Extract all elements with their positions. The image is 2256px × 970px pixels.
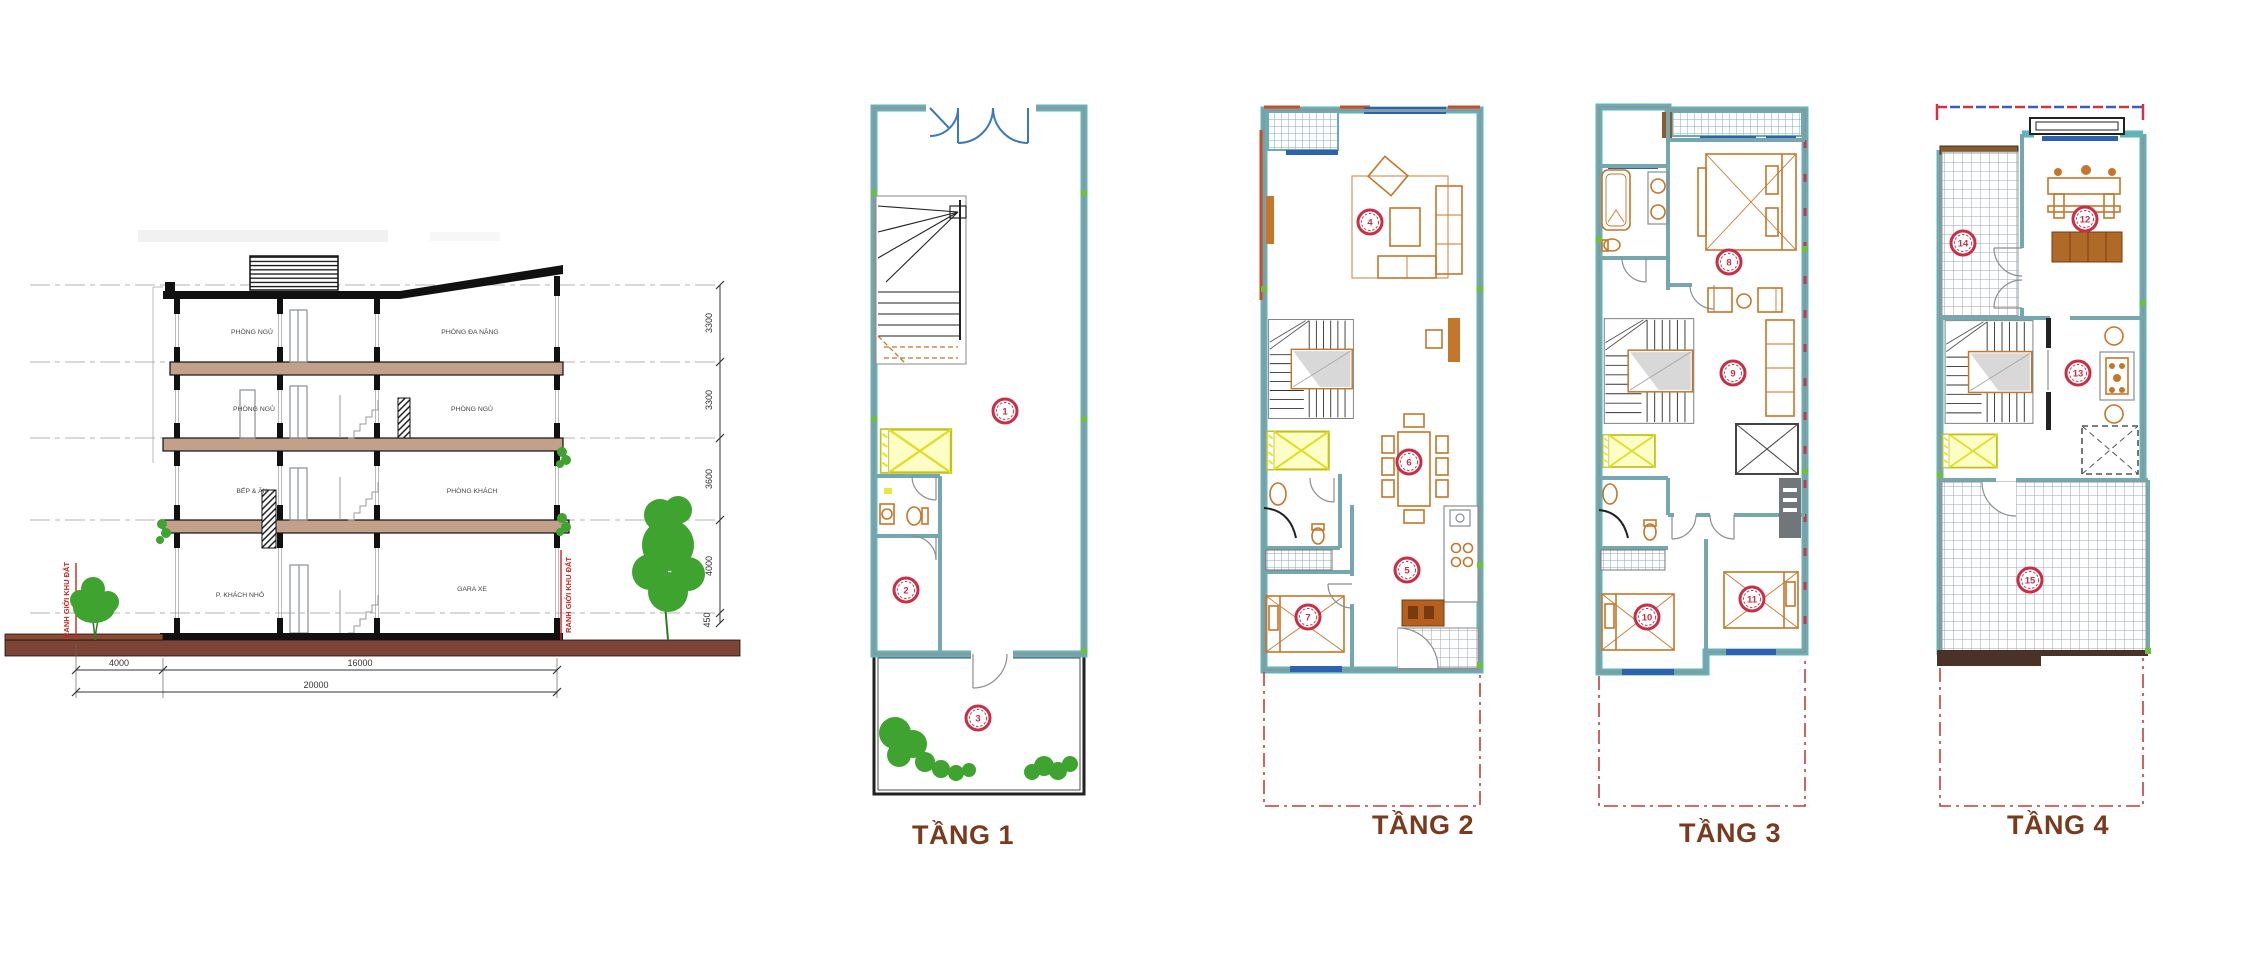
svg-text:11: 11 — [1747, 595, 1758, 606]
dim-h: 20000 — [303, 680, 328, 690]
shelf — [1779, 478, 1801, 538]
dim-v: 4000 — [704, 556, 714, 576]
room-label: PHÒNG KHÁCH — [447, 486, 498, 495]
plan-title-floor4: TẦNG 4 — [2007, 810, 2109, 841]
partition-stubs — [2046, 318, 2051, 430]
elevator — [881, 429, 951, 472]
room-marker: 8 — [1717, 250, 1741, 274]
bay-window — [2030, 118, 2124, 141]
tree-right — [632, 496, 705, 640]
dim-v: 3300 — [704, 390, 714, 410]
room-marker: 12 — [2073, 207, 2097, 231]
tiled-landing — [1398, 628, 1478, 668]
elevator — [1603, 435, 1655, 467]
hall-doors — [1672, 515, 1734, 539]
master-bed — [1690, 154, 1796, 309]
staircase — [1604, 319, 1694, 424]
ground — [5, 640, 740, 656]
roof-slab — [163, 265, 563, 299]
staircase — [1269, 319, 1354, 418]
drawing-sheet: PHÒNG NGỦ PHÒNG ĐA NĂNG PHÒNG NGỦ PHÒNG … — [0, 0, 2256, 970]
room-marker: 15 — [2018, 568, 2042, 592]
closet — [1266, 550, 1332, 570]
window-sill — [1290, 666, 1342, 672]
plan-title-floor1: TẦNG 1 — [912, 820, 1014, 851]
svg-text:6: 6 — [1406, 458, 1411, 469]
svg-text:5: 5 — [1404, 566, 1410, 577]
staircase — [876, 196, 966, 364]
room-marker: 2 — [894, 578, 918, 602]
plan-title-floor3: TẦNG 3 — [1679, 818, 1781, 849]
room-label: BẾP & ĂN — [236, 485, 267, 495]
bathroom — [1599, 484, 1656, 540]
svg-text:4: 4 — [1367, 218, 1373, 229]
section-stairs — [340, 395, 378, 633]
room-label: PHÒNG NGỦ — [451, 404, 493, 413]
bathroom — [880, 476, 936, 525]
vertical-dimensions: 3300 3300 3600 4000 450 — [702, 281, 724, 628]
interior-walls — [1264, 474, 1352, 670]
floor-slabs — [163, 362, 569, 533]
sitting-area — [1708, 288, 1794, 416]
dim-h: 4000 — [109, 658, 129, 668]
parapet-wall — [2040, 650, 2148, 656]
dim-v: 450 — [702, 612, 712, 627]
elevator — [1943, 434, 1997, 467]
lot-boundary — [1599, 656, 1805, 806]
store-room-door — [912, 536, 936, 560]
wardrobe — [2082, 426, 2138, 474]
boundary-label: RANH GIỚI KHU ĐẤT — [61, 562, 71, 638]
svg-text:8: 8 — [1726, 258, 1731, 269]
room-marker: 5 — [1395, 558, 1419, 582]
svg-text:15: 15 — [2025, 576, 2036, 587]
building-section: PHÒNG NGỦ PHÒNG ĐA NĂNG PHÒNG NGỦ PHÒNG … — [0, 0, 760, 970]
plan-title-floor2: TẦNG 2 — [1372, 810, 1474, 841]
svg-text:7: 7 — [1305, 613, 1310, 624]
balcony — [1268, 112, 1338, 150]
staircase — [1945, 321, 2033, 424]
room-label: PHÒNG ĐA NĂNG — [441, 327, 498, 336]
parapet-wall — [1937, 650, 2041, 666]
ground-slab — [160, 633, 563, 640]
svg-text:2: 2 — [903, 586, 908, 597]
room-marker: 3 — [966, 706, 990, 730]
wardrobe — [1736, 424, 1798, 474]
room-marker: 10 — [1635, 605, 1659, 629]
svg-text:1: 1 — [1002, 407, 1008, 418]
room-marker: 6 — [1397, 450, 1421, 474]
window-sill — [1622, 669, 1674, 675]
lot-boundary — [1940, 658, 2143, 806]
roof-terrace — [1942, 482, 2146, 652]
master-bathroom — [1602, 170, 1668, 282]
exterior-wall — [874, 108, 1084, 654]
tea-table — [2100, 327, 2134, 423]
section-doors — [240, 310, 308, 633]
floor-plan-2: 4 5 6 7 — [1250, 55, 1495, 855]
room-marker: 7 — [1296, 605, 1320, 629]
boundary-label: RANH GIỚI KHU ĐẤT — [563, 557, 573, 633]
svg-text:9: 9 — [1730, 369, 1735, 380]
room-marker: 11 — [1740, 587, 1764, 611]
svg-text:14: 14 — [1958, 239, 1969, 250]
svg-text:13: 13 — [2073, 369, 2084, 380]
floor-plan-4: 12 13 14 15 — [1920, 55, 2165, 855]
desk — [1426, 318, 1460, 362]
room-label: PHÒNG NGỦ — [233, 404, 275, 413]
dim-h: 16000 — [347, 658, 372, 668]
tree-left — [70, 577, 119, 640]
lot-boundary — [1264, 672, 1480, 806]
window-sill — [1726, 649, 1776, 655]
roof-louver — [250, 256, 338, 290]
room-label: PHÒNG NGỦ — [231, 327, 273, 336]
dim-v: 3600 — [704, 469, 714, 489]
floor-plan-3: 8 9 10 11 — [1585, 55, 1820, 855]
room-label: GARA XE — [457, 586, 487, 593]
room-marker: 9 — [1721, 361, 1745, 385]
svg-text:10: 10 — [1642, 613, 1653, 624]
boundary-right: RANH GIỚI KHU ĐẤT — [561, 550, 573, 640]
svg-text:3: 3 — [975, 714, 980, 725]
faded-band — [138, 230, 388, 242]
balcony — [1672, 112, 1802, 136]
room-marker: 13 — [2066, 361, 2090, 385]
dim-v: 3300 — [704, 313, 714, 333]
window-sill — [1286, 150, 1338, 155]
room-marker: 4 — [1358, 210, 1382, 234]
room-label: P. KHÁCH NHỎ — [216, 590, 264, 599]
floor-plan-1: 1 2 3 — [860, 55, 1110, 855]
closet — [1601, 550, 1665, 570]
room-marker: 14 — [1951, 231, 1975, 255]
room-marker: 1 — [993, 399, 1017, 423]
bathroom — [1264, 478, 1334, 544]
svg-text:12: 12 — [2080, 215, 2091, 226]
hatched-frame — [398, 398, 410, 438]
elevator — [1267, 432, 1328, 470]
interior-walls — [874, 476, 940, 654]
hatched-frame — [262, 490, 276, 548]
